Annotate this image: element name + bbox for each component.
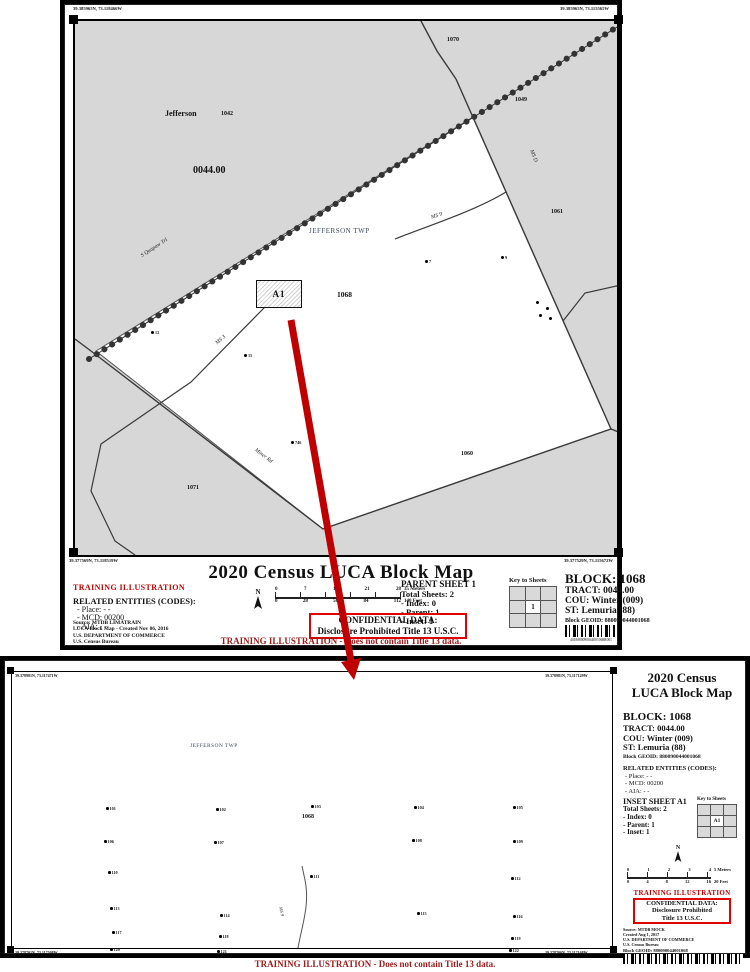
scale-tick: 8 bbox=[666, 879, 668, 884]
map-spot: 7 bbox=[425, 252, 431, 270]
map-spot-dot bbox=[511, 877, 514, 880]
map-spot-label: 110 bbox=[112, 870, 118, 875]
scale-tick: 4 bbox=[709, 867, 711, 872]
corner-mark bbox=[614, 548, 623, 557]
block-label-1068: 1068 bbox=[337, 290, 352, 299]
map-spot-label: 109 bbox=[517, 839, 523, 844]
scale-feet-ticks: 0285684112 bbox=[275, 599, 401, 604]
map-spot-label: 122 bbox=[513, 948, 519, 953]
key-grid-cell bbox=[526, 614, 541, 627]
scale-tick: 2 bbox=[668, 867, 670, 872]
map-spot: 116 bbox=[513, 907, 523, 925]
block-label-1061: 1061 bbox=[551, 209, 563, 215]
map-spot: 117 bbox=[112, 923, 122, 941]
scale-tick: 56 bbox=[333, 599, 338, 604]
block-label-1042: 1042 bbox=[221, 111, 233, 117]
scale-tick: 12 bbox=[685, 879, 690, 884]
block-info-line: ST: Lemuria (88) bbox=[623, 743, 693, 753]
scale-tick: 0 bbox=[275, 587, 278, 592]
inset-related-heading: RELATED ENTITIES (CODES): bbox=[623, 765, 717, 772]
map-spot-dot bbox=[216, 808, 219, 811]
scale-tick: 112 bbox=[394, 599, 401, 604]
parent-map-geometry bbox=[75, 21, 619, 555]
inset-road-line bbox=[298, 866, 307, 948]
parent-sheet-paper: 39.385965N, 73.118466W 39.385965N, 73.11… bbox=[64, 4, 618, 646]
scale-tick: 84 bbox=[363, 599, 368, 604]
map-spot: 108 bbox=[412, 831, 422, 849]
scale-tick: 21 bbox=[365, 587, 370, 592]
confidential-line: CONFIDENTIAL DATA: bbox=[635, 900, 729, 907]
inset-title-line-1: 2020 Census bbox=[619, 671, 745, 686]
map-spot-label: 113 bbox=[114, 906, 120, 911]
map-spot-label: 117 bbox=[116, 930, 122, 935]
north-arrow: N bbox=[251, 589, 265, 610]
sheet-footer-disclaimer: TRAINING ILLUSTRATION - Does not contain… bbox=[65, 636, 617, 646]
map-spot bbox=[539, 306, 543, 324]
map-spot bbox=[549, 309, 553, 327]
inset-scale-bar: 01234 5 Meters 0481216 20 Feet bbox=[627, 867, 745, 884]
inset-confidential-box: CONFIDENTIAL DATA:Disclosure ProhibitedT… bbox=[633, 898, 731, 924]
map-spot-dot bbox=[244, 354, 247, 357]
source-line: LUCA Block Map - Created Nov 06, 2016 bbox=[73, 626, 168, 632]
inset-training-label: TRAINING ILLUSTRATION bbox=[619, 889, 745, 897]
map-spot-dot bbox=[509, 949, 512, 952]
scale-meters-ticks: 07142128 bbox=[275, 587, 401, 592]
map-spot-label: 746 bbox=[295, 440, 301, 445]
scale-tick: 28 bbox=[303, 599, 308, 604]
block-id-heading: BLOCK: 1068 bbox=[565, 571, 646, 587]
key-grid-cell bbox=[541, 601, 556, 614]
map-spot-dot bbox=[110, 907, 113, 910]
corner-coordinate-top-right: 39.385965N, 73.115565W bbox=[560, 6, 609, 11]
related-entity-item: - AIA: - - bbox=[625, 788, 663, 795]
map-spot-label: 12 bbox=[155, 330, 159, 335]
inset-coordinate-bottom-left: 39.378701N, 73.117508W bbox=[15, 950, 58, 955]
map-spot-label: 112 bbox=[515, 876, 521, 881]
corner-mark bbox=[614, 15, 623, 24]
key-grid-cell bbox=[510, 601, 525, 614]
map-spot: 114 bbox=[220, 906, 230, 924]
map-spot-label: 9 bbox=[505, 255, 507, 260]
map-spot-label: 121 bbox=[221, 949, 227, 954]
map-spot-label: 104 bbox=[418, 805, 424, 810]
key-grid-cell bbox=[526, 587, 541, 600]
map-spot-dot bbox=[513, 806, 516, 809]
scale-tick: 1 bbox=[647, 867, 649, 872]
inset-geoid-caption: Block GEOID: 880090044001068 bbox=[623, 948, 688, 953]
inset-coordinate-top-right: 39.378981N, 73.117129W bbox=[545, 673, 588, 678]
scale-meters-ticks: 01234 bbox=[627, 867, 711, 872]
inset-sheet-info: Total Sheets: 2- Index: 0- Parent: 1- In… bbox=[623, 806, 667, 837]
map-spot: 104 bbox=[414, 798, 424, 816]
map-spot-label: 107 bbox=[218, 840, 224, 845]
inset-sheet-title: 2020 Census LUCA Block Map bbox=[619, 671, 745, 701]
corner-mark bbox=[610, 667, 617, 674]
map-spot-label: 103 bbox=[315, 804, 321, 809]
scale-meters-end: 5 Meters bbox=[714, 867, 731, 872]
map-spot-dot bbox=[151, 331, 154, 334]
map-spot-dot bbox=[112, 931, 115, 934]
scale-tick: 3 bbox=[688, 867, 690, 872]
block-id-lines: TRACT: 0044.00COU: Winter (009)ST: Lemur… bbox=[565, 587, 643, 617]
scale-feet-row: 0481216 20 Feet bbox=[627, 879, 745, 884]
key-to-sheets-caption: Key to Sheets bbox=[509, 577, 547, 584]
map-spot-dot bbox=[106, 807, 109, 810]
key-grid-cell bbox=[698, 805, 710, 815]
map-spot-label: 108 bbox=[416, 838, 422, 843]
scale-tick: 0 bbox=[275, 599, 278, 604]
block-label-1070: 1070 bbox=[447, 37, 459, 43]
key-grid-cell bbox=[711, 805, 723, 815]
corner-mark bbox=[69, 15, 78, 24]
key-grid-cell bbox=[724, 816, 736, 826]
inset-title-line-2: LUCA Block Map bbox=[619, 686, 745, 701]
map-spot: 110 bbox=[108, 863, 118, 881]
key-grid-cell bbox=[724, 827, 736, 837]
north-label: N bbox=[255, 589, 260, 596]
map-spot-label: 116 bbox=[517, 914, 523, 919]
map-spot-dot bbox=[536, 301, 539, 304]
map-spot: 112 bbox=[511, 869, 521, 887]
map-spot-dot bbox=[219, 935, 222, 938]
map-spot-label: 102 bbox=[220, 807, 226, 812]
map-spot-dot bbox=[417, 912, 420, 915]
map-spot-dot bbox=[501, 256, 504, 259]
sheet-info-line: - Inset: 1 bbox=[623, 829, 667, 837]
township-label: JEFFERSON TWP bbox=[309, 227, 370, 235]
inset-key-grid: A1 bbox=[697, 804, 737, 838]
map-spot: 102 bbox=[216, 800, 226, 818]
map-spot: 122 bbox=[509, 941, 519, 959]
tract-label: 0044.00 bbox=[193, 165, 226, 176]
scale-tick: 14 bbox=[333, 587, 338, 592]
map-spot-dot bbox=[104, 840, 107, 843]
corner-mark bbox=[7, 667, 14, 674]
key-grid-cell: 1 bbox=[526, 601, 541, 614]
map-spot: 106 bbox=[104, 832, 114, 850]
key-grid-cell bbox=[541, 614, 556, 627]
key-grid-cell bbox=[698, 827, 710, 837]
corner-mark bbox=[69, 548, 78, 557]
county-label: Jefferson bbox=[165, 109, 197, 118]
map-spot: 12 bbox=[151, 323, 159, 341]
map-spot-label: 101 bbox=[110, 806, 116, 811]
map-spot: 103 bbox=[311, 797, 321, 815]
parent-map-sheet: 39.385965N, 73.118466W 39.385965N, 73.11… bbox=[60, 0, 622, 650]
inset-north-arrow: N bbox=[671, 845, 685, 863]
scale-tick: 0 bbox=[627, 879, 629, 884]
parent-sheet-heading: PARENT SHEET 1 bbox=[401, 579, 476, 589]
inset-sheet-paper: 39.378981N, 73.117471W 39.378981N, 73.11… bbox=[4, 660, 746, 954]
inset-coordinate-bottom-right: 39.378706N, 73.117168W bbox=[545, 950, 588, 955]
block-label-1049: 1049 bbox=[515, 97, 527, 103]
map-spot: 9 bbox=[501, 248, 507, 266]
north-arrow-icon bbox=[673, 851, 683, 863]
map-spot-dot bbox=[110, 948, 113, 951]
map-spot: 113 bbox=[110, 899, 120, 917]
inset-key-caption: Key to Sheets bbox=[697, 797, 726, 802]
map-spot-dot bbox=[220, 914, 223, 917]
map-spot-label: 15 bbox=[248, 353, 252, 358]
block-label-1060: 1060 bbox=[461, 451, 473, 457]
map-spot-dot bbox=[425, 260, 428, 263]
map-spot: 121 bbox=[217, 942, 227, 960]
map-spot: 115 bbox=[417, 904, 427, 922]
inset-a1-extent-box: A1 bbox=[256, 280, 302, 308]
scale-feet-end: 20 Feet bbox=[714, 879, 728, 884]
scale-tick: 7 bbox=[304, 587, 307, 592]
map-spot-dot bbox=[214, 841, 217, 844]
scale-tick: 0 bbox=[627, 867, 629, 872]
map-spot-dot bbox=[513, 915, 516, 918]
map-spot-dot bbox=[311, 805, 314, 808]
inset-block-geoid: Block GEOID: 880090044001068 bbox=[623, 754, 701, 760]
map-spot: 746 bbox=[291, 433, 301, 451]
map-spot-label: 118 bbox=[223, 934, 229, 939]
scale-feet-ticks: 0481216 bbox=[627, 879, 711, 884]
page-footer-disclaimer: TRAINING ILLUSTRATION - Does not contain… bbox=[0, 959, 750, 969]
corner-mark bbox=[610, 946, 617, 953]
map-spot-dot bbox=[412, 839, 415, 842]
inset-block-id-lines: TRACT: 0044.00COU: Winter (009)ST: Lemur… bbox=[623, 724, 693, 753]
confidential-line: Disclosure Prohibited bbox=[635, 907, 729, 914]
scale-meters-row: 01234 5 Meters bbox=[627, 867, 745, 872]
map-spot-dot bbox=[549, 317, 552, 320]
map-spot-dot bbox=[217, 950, 220, 953]
map-spot-label: 120 bbox=[114, 947, 120, 952]
key-grid-cell bbox=[698, 816, 710, 826]
scale-tick: 16 bbox=[707, 879, 712, 884]
map-spot-label: 106 bbox=[108, 839, 114, 844]
corner-coordinate-top-left: 39.385965N, 73.118466W bbox=[73, 6, 122, 11]
map-spot-dot bbox=[414, 806, 417, 809]
key-grid-cell bbox=[510, 614, 525, 627]
key-grid-cell: A1 bbox=[711, 816, 723, 826]
map-spot-dot bbox=[511, 937, 514, 940]
map-spot: 105 bbox=[513, 798, 523, 816]
map-spot-dot bbox=[513, 840, 516, 843]
map-spot-label: 114 bbox=[224, 913, 230, 918]
inset-side-panel: 2020 Census LUCA Block Map BLOCK: 1068 T… bbox=[619, 661, 745, 955]
scale-line bbox=[627, 872, 711, 879]
key-grid-cell bbox=[541, 587, 556, 600]
map-spot-dot bbox=[108, 871, 111, 874]
map-spot-dot bbox=[310, 875, 313, 878]
related-entity-item: - Place: - - bbox=[625, 773, 663, 780]
map-spot: 15 bbox=[244, 346, 252, 364]
block-info-line: ST: Lemuria (88) bbox=[565, 607, 643, 617]
map-spot-dot bbox=[291, 441, 294, 444]
scale-tick: 4 bbox=[646, 879, 648, 884]
map-spot-dot bbox=[539, 314, 542, 317]
inset-township-label: JEFFERSON TWP bbox=[190, 743, 238, 749]
key-grid-cell bbox=[724, 805, 736, 815]
map-spot-label: 7 bbox=[429, 259, 431, 264]
north-arrow-icon bbox=[252, 596, 264, 610]
map-spot: 120 bbox=[110, 940, 120, 958]
training-illustration-page: { "top_sheet": { "coords": { "tl": "39.3… bbox=[0, 0, 750, 972]
inset-map-sheet: 39.378981N, 73.117471W 39.378981N, 73.11… bbox=[0, 656, 750, 958]
confidential-line-1: CONFIDENTIAL DATA: bbox=[311, 615, 465, 626]
training-illustration-label: TRAINING ILLUSTRATION bbox=[73, 583, 185, 592]
map-spot: 107 bbox=[214, 833, 224, 851]
key-grid-cell bbox=[711, 827, 723, 837]
map-spot-label: 105 bbox=[517, 805, 523, 810]
scale-line bbox=[275, 592, 401, 599]
map-spot: 109 bbox=[513, 832, 523, 850]
confidential-line: Title 13 U.S.C. bbox=[635, 915, 729, 922]
block-label-1071: 1071 bbox=[187, 485, 199, 491]
inset-source-block: Source: MTDB MOCKCreated Aug 1, 2017U.S.… bbox=[623, 928, 694, 948]
related-entity-item: - MCD: 00200 bbox=[625, 780, 663, 787]
map-spot: 111 bbox=[310, 867, 319, 885]
key-grid-cell bbox=[510, 587, 525, 600]
corner-mark bbox=[7, 946, 14, 953]
map-spot-label: 111 bbox=[314, 874, 320, 879]
key-to-sheets-grid: 1 bbox=[509, 586, 557, 628]
parent-map-frame bbox=[73, 19, 619, 557]
block-geoid: Block GEOID: 880090044001068 bbox=[565, 618, 650, 624]
inset-related-list: - Place: - -- MCD: 00200- AIA: - - bbox=[625, 773, 663, 795]
inset-block-id-heading: BLOCK: 1068 bbox=[623, 711, 691, 723]
inset-coordinate-top-left: 39.378981N, 73.117471W bbox=[15, 673, 58, 678]
map-spot-label: 115 bbox=[421, 911, 427, 916]
map-spot: 101 bbox=[106, 799, 116, 817]
